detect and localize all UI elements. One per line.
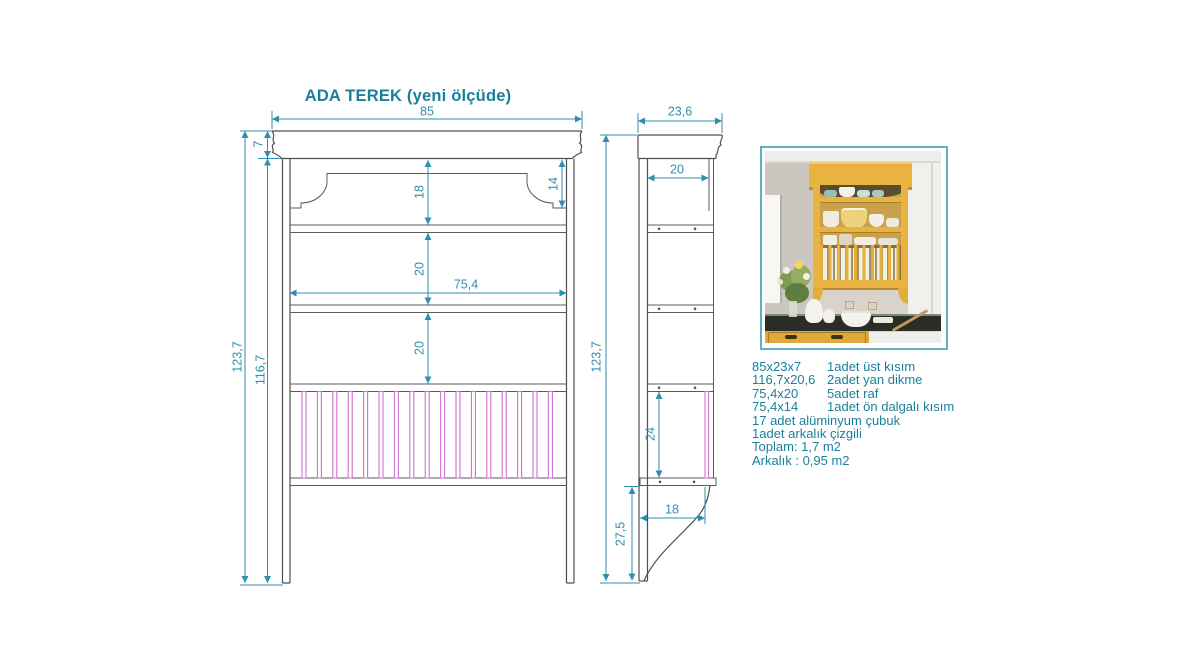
side-shelves	[648, 225, 714, 392]
side-screw-dots	[658, 228, 697, 484]
dim-front-gap-lower: 20	[414, 341, 427, 355]
photo-window	[765, 195, 782, 303]
photo-plate-stack	[823, 235, 837, 245]
photo-rack-slats	[820, 245, 901, 280]
aluminum-rod	[364, 392, 368, 479]
front-cornice-right-profile	[572, 131, 582, 159]
drawing-canvas	[0, 0, 1200, 666]
parts-note: 17 adet alüminyum çubuk	[752, 414, 982, 427]
photo-glassware	[839, 234, 852, 245]
aluminum-rod	[317, 392, 321, 479]
side-cornice-broken-edge	[716, 135, 722, 159]
aluminum-rod	[518, 392, 522, 479]
reference-photo	[765, 151, 941, 343]
front-dimension-lines	[240, 111, 582, 585]
parts-row: 116,7x20,62adet yan dikme	[752, 373, 982, 386]
dim-front-gap-upper: 20	[414, 262, 427, 276]
aluminum-rod	[487, 392, 491, 479]
aluminum-rod	[410, 392, 414, 479]
photo-cake-stand	[839, 187, 855, 197]
photo-hutch-bottom-rail	[813, 280, 908, 290]
photo-wall-outlet	[868, 302, 877, 310]
photo-hutch-shelf	[820, 197, 901, 203]
photo-drawer-pull	[831, 335, 843, 339]
photo-bowls	[854, 237, 876, 245]
dim-front-total-height: 123,7	[232, 341, 245, 372]
dim-front-inner-width: 75,4	[454, 279, 478, 292]
parts-total: Toplam: 1,7 m2	[752, 440, 982, 453]
photo-hutch-shelf	[820, 227, 901, 233]
dim-side-depth: 23,6	[668, 106, 692, 119]
parts-row: 85x23x71adet üst kısım	[752, 360, 982, 373]
photo-drawer-pull	[785, 335, 797, 339]
parts-note: 1adet arkalık çizgili	[752, 427, 982, 440]
side-dimension-lines	[600, 113, 722, 583]
side-bottom-shelf	[640, 478, 716, 486]
aluminum-rod	[394, 392, 398, 479]
aluminum-rod	[533, 392, 537, 479]
reference-photo-frame	[760, 146, 948, 350]
photo-dishwasher	[869, 331, 941, 343]
dim-side-total-height: 123,7	[591, 341, 604, 372]
dim-side-leg-height: 27,5	[615, 522, 628, 546]
aluminum-rod	[456, 392, 460, 479]
photo-small-bowl	[886, 218, 899, 227]
photo-drawer	[768, 332, 866, 343]
technical-drawing-page: ADA TEREK (yeni ölçüde)	[0, 0, 1200, 666]
photo-flower	[783, 267, 790, 274]
photo-foliage	[785, 283, 809, 303]
photo-hutch-right-rail	[901, 185, 908, 286]
aluminum-rod	[333, 392, 337, 479]
photo-wall-trim	[931, 163, 933, 313]
front-view-drawing	[240, 111, 582, 585]
part-size: 75,4x14	[752, 400, 827, 413]
photo-pitcher	[805, 299, 823, 323]
side-aluminum-rod	[705, 392, 709, 479]
aluminum-rod	[548, 392, 552, 479]
dim-side-inner-depth: 20	[670, 164, 684, 177]
dim-side-rod-section: 24	[645, 427, 658, 441]
aluminum-rod	[379, 392, 383, 479]
photo-hutch-left-rail	[813, 185, 820, 286]
parts-row: 75,4x141adet ön dalgalı kısım	[752, 400, 982, 413]
aluminum-rod	[302, 392, 306, 479]
part-size: 75,4x20	[752, 387, 827, 400]
photo-jug	[823, 309, 835, 323]
part-desc: 1adet ön dalgalı kısım	[827, 399, 954, 414]
aluminum-rod	[348, 392, 352, 479]
dim-front-width: 85	[420, 106, 434, 119]
aluminum-rod	[425, 392, 429, 479]
dim-front-valance-edge: 14	[548, 177, 561, 191]
photo-plate-stack	[823, 211, 839, 227]
photo-vase	[789, 301, 797, 317]
side-view-drawing	[600, 113, 722, 583]
photo-hutch-right-bracket	[898, 288, 908, 304]
dim-front-cornice-height: 7	[253, 141, 266, 148]
side-ogee-bracket	[644, 486, 710, 582]
photo-flower	[803, 273, 810, 280]
photo-flower	[795, 261, 803, 269]
photo-wall-outlet	[845, 301, 854, 309]
photo-celadon-bowl	[857, 190, 870, 197]
part-size: 85x23x7	[752, 360, 827, 373]
dim-side-bracket-depth: 18	[665, 504, 679, 517]
photo-blue-dish	[872, 190, 884, 197]
photo-teal-dish	[824, 190, 837, 197]
part-size: 116,7x20,6	[752, 373, 827, 386]
front-aluminum-rods	[302, 392, 552, 479]
aluminum-rod	[471, 392, 475, 479]
dim-front-top-section: 18	[414, 185, 427, 199]
parts-row: 75,4x205adet raf	[752, 387, 982, 400]
dim-front-side-height: 116,7	[255, 355, 268, 385]
front-cornice-left-profile	[272, 131, 282, 159]
parts-total: Arkalık : 0,95 m2	[752, 454, 982, 467]
photo-dishes	[878, 238, 898, 245]
photo-counter-plates	[873, 317, 893, 323]
aluminum-rod	[502, 392, 506, 479]
aluminum-rod	[441, 392, 445, 479]
photo-flower	[777, 279, 783, 285]
parts-list: 85x23x71adet üst kısım 116,7x20,62adet y…	[752, 360, 982, 467]
photo-yellow-bowl	[841, 208, 867, 229]
